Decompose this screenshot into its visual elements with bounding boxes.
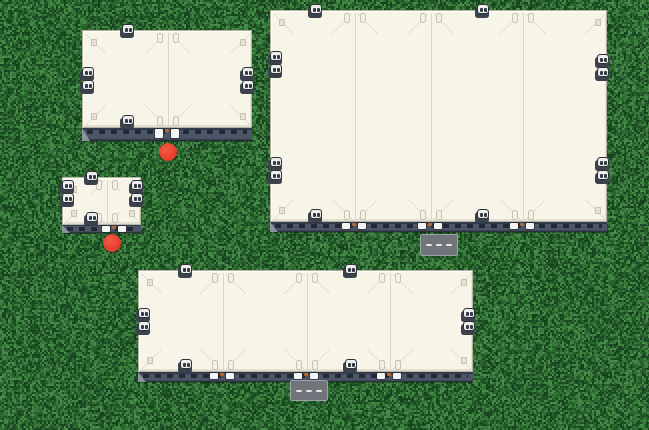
hvac-unit-face [86, 171, 98, 181]
hvac-unit-face [597, 157, 609, 167]
marker-building-top-left[interactable] [159, 143, 177, 161]
hvac-vent-slot [348, 268, 351, 272]
game-viewport [0, 0, 649, 430]
hvac-unit-icon [308, 4, 324, 18]
hvac-unit-face [82, 67, 94, 77]
roof-section-divider [307, 273, 308, 371]
hvac-vent-slot [249, 71, 252, 75]
lane-dash [306, 390, 312, 392]
roof-pipe [528, 13, 534, 23]
hvac-unit-icon [240, 80, 256, 94]
building-bottom[interactable] [138, 270, 473, 382]
roof-hatch [279, 19, 285, 26]
hvac-unit-icon [268, 51, 284, 65]
hvac-vent-slot [85, 84, 88, 88]
hvac-unit-icon [84, 171, 100, 185]
roof-hatch [91, 113, 97, 120]
hvac-unit-face [180, 264, 192, 274]
hvac-unit-icon [178, 264, 194, 278]
roof-pipe [379, 360, 385, 370]
hvac-unit-icon [343, 359, 359, 373]
roof-pipe [395, 360, 401, 370]
hvac-vent-slot [89, 175, 92, 179]
entrance-door [520, 223, 524, 226]
roof-pipe [344, 13, 350, 23]
hvac-vent-slot [134, 197, 137, 201]
hvac-vent-slot [277, 68, 280, 72]
hvac-unit-face [270, 157, 282, 167]
door-post [434, 223, 442, 229]
hvac-unit-face [62, 180, 74, 190]
building-small-left[interactable] [62, 177, 141, 233]
hvac-vent-slot [145, 312, 148, 316]
roof-pipe [173, 116, 179, 126]
roof-hatch [595, 207, 601, 214]
hvac-unit-face [597, 54, 609, 64]
lane-dash [316, 390, 322, 392]
roof-section-divider [107, 180, 108, 224]
hvac-unit-face [310, 4, 322, 14]
hvac-unit-face [180, 359, 192, 369]
roof [270, 10, 607, 222]
entrance-door [165, 129, 169, 132]
hvac-unit-icon [268, 157, 284, 171]
roof-hatch [595, 19, 601, 26]
hvac-vent-slot [317, 213, 320, 217]
roof-pipe [360, 13, 366, 23]
hvac-vent-slot [89, 216, 92, 220]
hvac-vent-slot [352, 363, 355, 367]
lane-dash [436, 244, 442, 246]
door-post [294, 373, 302, 379]
hvac-unit-face [131, 180, 143, 190]
roof-pipe [212, 360, 218, 370]
roof-pipe [344, 210, 350, 220]
roof-hatch [129, 210, 135, 217]
hvac-vent-slot [317, 8, 320, 12]
roof-pipe [420, 13, 426, 23]
hvac-vent-slot [273, 55, 276, 59]
hvac-unit-icon [178, 359, 194, 373]
door-post [342, 223, 350, 229]
roof-pipe [436, 13, 442, 23]
hvac-unit-icon [595, 67, 611, 81]
entrance-door [220, 373, 224, 376]
roof-hatch [147, 357, 153, 364]
wall-end-wedge [138, 372, 146, 382]
entrance-door [428, 223, 432, 226]
roof-pipe [312, 360, 318, 370]
hvac-unit-face [597, 170, 609, 180]
roof-section-divider [431, 13, 432, 221]
entrance-door [352, 223, 356, 226]
marker-building-small-left[interactable] [103, 234, 121, 252]
hvac-unit-face [477, 4, 489, 14]
hvac-vent-slot [484, 213, 487, 217]
door-post [210, 373, 218, 379]
hvac-vent-slot [480, 8, 483, 12]
entrance-door [304, 373, 308, 376]
lane-dash [296, 390, 302, 392]
hvac-vent-slot [273, 174, 276, 178]
roof-pipe [212, 273, 218, 283]
hvac-vent-slot [604, 58, 607, 62]
roof [82, 30, 252, 128]
hvac-vent-slot [604, 161, 607, 165]
roof-pipe [228, 360, 234, 370]
roof-pipe [296, 273, 302, 283]
roof-hatch [279, 207, 285, 214]
door-post [102, 226, 110, 232]
roof-pipe [436, 210, 442, 220]
roof-hatch [91, 39, 97, 46]
hvac-vent-slot [249, 84, 252, 88]
hvac-vent-slot [65, 184, 68, 188]
roof-pipe [112, 213, 118, 223]
door-post [418, 223, 426, 229]
hvac-unit-icon [461, 321, 477, 335]
hvac-vent-slot [141, 312, 144, 316]
hvac-vent-slot [187, 363, 190, 367]
hvac-vent-slot [69, 184, 72, 188]
hvac-vent-slot [466, 325, 469, 329]
hvac-vent-slot [125, 28, 128, 32]
hvac-vent-slot [65, 197, 68, 201]
roof-pipe [173, 33, 179, 43]
hvac-unit-icon [343, 264, 359, 278]
roof-pipe [312, 273, 318, 283]
hvac-vent-slot [93, 216, 96, 220]
roof [62, 177, 141, 225]
hvac-unit-icon [595, 157, 611, 171]
hvac-vent-slot [134, 184, 137, 188]
roof-hatch [461, 279, 467, 286]
hvac-vent-slot [145, 325, 148, 329]
roof-pipe [395, 273, 401, 283]
hvac-vent-slot [484, 8, 487, 12]
door-post [393, 373, 401, 379]
entrance-door [387, 373, 391, 376]
hvac-unit-icon [268, 170, 284, 184]
roof-hatch [240, 113, 246, 120]
hvac-vent-slot [129, 119, 132, 123]
hvac-vent-slot [470, 325, 473, 329]
wall-end-wedge [62, 225, 70, 233]
hvac-vent-slot [125, 119, 128, 123]
hvac-unit-icon [120, 24, 136, 38]
hvac-vent-slot [93, 175, 96, 179]
hvac-vent-slot [138, 197, 141, 201]
door-post [310, 373, 318, 379]
hvac-unit-face [131, 193, 143, 203]
roof-pipe [512, 210, 518, 220]
hvac-unit-face [477, 209, 489, 219]
hvac-vent-slot [480, 213, 483, 217]
door-post [510, 223, 518, 229]
hvac-vent-slot [604, 71, 607, 75]
roof-pipe [528, 210, 534, 220]
roof-pipe [157, 33, 163, 43]
roof-section-divider [223, 273, 224, 371]
front-wall [82, 128, 252, 141]
hvac-vent-slot [277, 161, 280, 165]
wall-end-wedge [82, 128, 90, 141]
hvac-vent-slot [85, 71, 88, 75]
hvac-vent-slot [348, 363, 351, 367]
hvac-unit-icon [475, 209, 491, 223]
hvac-vent-slot [89, 84, 92, 88]
hvac-vent-slot [273, 68, 276, 72]
door-post [155, 129, 163, 138]
hvac-unit-icon [80, 80, 96, 94]
hvac-vent-slot [141, 325, 144, 329]
roof-pipe [157, 116, 163, 126]
hvac-unit-icon [129, 180, 145, 194]
road-segment-top-right[interactable] [420, 234, 458, 256]
hvac-vent-slot [277, 174, 280, 178]
roof-hatch [240, 39, 246, 46]
hvac-unit-face [463, 308, 475, 318]
front-wall [270, 222, 607, 232]
roof-hatch [71, 210, 77, 217]
hvac-vent-slot [245, 71, 248, 75]
roof-section-divider [355, 13, 356, 221]
roof-pipe [228, 273, 234, 283]
hvac-unit-face [345, 359, 357, 369]
hvac-vent-slot [183, 363, 186, 367]
door-post [118, 226, 126, 232]
hvac-unit-face [597, 67, 609, 77]
hvac-unit-icon [129, 193, 145, 207]
wall-end-wedge [270, 222, 278, 232]
roof-pipe [379, 273, 385, 283]
hvac-unit-icon [268, 64, 284, 78]
hvac-vent-slot [187, 268, 190, 272]
roof-hatch [461, 357, 467, 364]
roof-section-divider [390, 273, 391, 371]
door-post [358, 223, 366, 229]
hvac-unit-face [122, 115, 134, 125]
hvac-unit-face [270, 51, 282, 61]
hvac-unit-face [242, 67, 254, 77]
hvac-unit-face [463, 321, 475, 331]
hvac-unit-face [138, 308, 150, 318]
hvac-vent-slot [352, 268, 355, 272]
hvac-vent-slot [245, 84, 248, 88]
building-top-left[interactable] [82, 30, 252, 141]
hvac-vent-slot [604, 174, 607, 178]
hvac-unit-face [86, 212, 98, 222]
roof [138, 270, 473, 372]
hvac-vent-slot [466, 312, 469, 316]
hvac-unit-face [270, 64, 282, 74]
door-post [526, 223, 534, 229]
hvac-unit-icon [136, 321, 152, 335]
hvac-vent-slot [69, 197, 72, 201]
roof-pipe [360, 210, 366, 220]
building-top-right[interactable] [270, 10, 607, 232]
hvac-unit-icon [84, 212, 100, 226]
roof-pipe [512, 13, 518, 23]
hvac-vent-slot [138, 184, 141, 188]
roof-pipe [420, 210, 426, 220]
hvac-unit-icon [136, 308, 152, 322]
hvac-vent-slot [277, 55, 280, 59]
hvac-vent-slot [600, 58, 603, 62]
hvac-unit-icon [461, 308, 477, 322]
hvac-vent-slot [183, 268, 186, 272]
hvac-unit-face [62, 193, 74, 203]
hvac-vent-slot [273, 161, 276, 165]
roof-section-divider [523, 13, 524, 221]
hvac-vent-slot [129, 28, 132, 32]
hvac-vent-slot [313, 8, 316, 12]
door-post [377, 373, 385, 379]
hvac-unit-face [242, 80, 254, 90]
hvac-unit-icon [595, 170, 611, 184]
scene-layer [0, 0, 649, 430]
hvac-unit-face [345, 264, 357, 274]
hvac-unit-face [122, 24, 134, 34]
hvac-unit-icon [308, 209, 324, 223]
hvac-vent-slot [600, 161, 603, 165]
hvac-unit-icon [60, 180, 76, 194]
hvac-vent-slot [89, 71, 92, 75]
hvac-vent-slot [600, 174, 603, 178]
hvac-unit-icon [80, 67, 96, 81]
entrance-door [112, 226, 116, 229]
roof-pipe [112, 180, 118, 190]
hvac-unit-face [82, 80, 94, 90]
roof-section-divider [168, 33, 169, 127]
hvac-unit-icon [475, 4, 491, 18]
hvac-unit-face [310, 209, 322, 219]
hvac-unit-face [270, 170, 282, 180]
hvac-unit-face [138, 321, 150, 331]
road-segment-bottom[interactable] [290, 380, 328, 401]
door-post [226, 373, 234, 379]
hvac-unit-icon [60, 193, 76, 207]
hvac-unit-icon [120, 115, 136, 129]
door-post [171, 129, 179, 138]
hvac-vent-slot [600, 71, 603, 75]
front-wall [62, 225, 141, 233]
hvac-vent-slot [470, 312, 473, 316]
hvac-vent-slot [313, 213, 316, 217]
roof-hatch [147, 279, 153, 286]
hvac-unit-icon [240, 67, 256, 81]
lane-dash [426, 244, 432, 246]
roof-pipe [296, 360, 302, 370]
hvac-unit-icon [595, 54, 611, 68]
lane-dash [446, 244, 452, 246]
